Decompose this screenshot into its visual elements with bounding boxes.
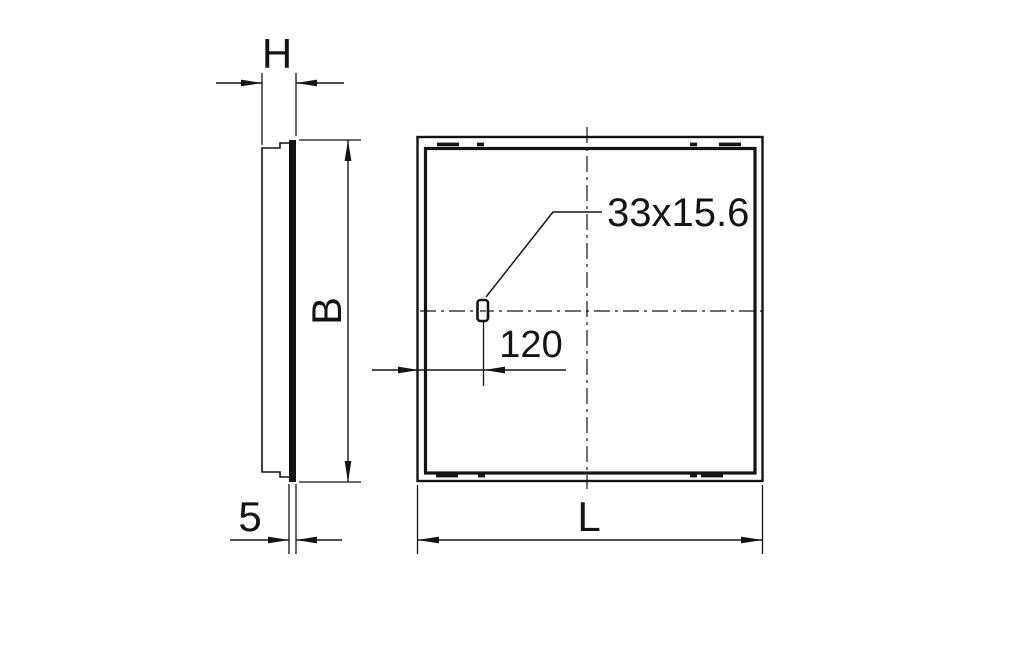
arrowhead: [241, 80, 262, 87]
arrowhead: [484, 367, 505, 374]
dimension-depth-H: H: [216, 30, 344, 145]
arrowhead: [418, 537, 440, 544]
front-view-outer-frame: [418, 137, 763, 481]
clip-mark-slot: [437, 143, 459, 147]
side-view-front-panel: [289, 140, 296, 482]
dimension-offset-120: 120: [372, 322, 566, 386]
clip-mark-square: [690, 143, 697, 147]
clip-mark-square: [478, 474, 485, 477]
leader-line: [486, 212, 602, 297]
dimension-label-offset: 120: [499, 324, 562, 366]
dimension-thickness-5: 5: [230, 484, 342, 554]
dimension-label-height: B: [303, 297, 350, 325]
clip-mark-slot: [701, 474, 723, 477]
cutout-size-label: 33x15.6: [607, 191, 749, 235]
panel-engineering-drawing: H B 5: [0, 0, 1024, 645]
clip-mark-square: [690, 474, 697, 477]
clip-mark-slot: [436, 474, 458, 477]
arrowhead: [296, 80, 317, 87]
cutout-callout: 33x15.6: [486, 191, 749, 297]
dimension-width-L: L: [418, 485, 763, 554]
side-view: [262, 140, 296, 482]
arrowhead: [345, 461, 352, 482]
dimension-height-B: B: [299, 140, 361, 482]
clip-mark-square: [477, 143, 484, 147]
arrowhead: [345, 140, 352, 161]
arrowhead: [398, 367, 419, 374]
arrowhead: [296, 537, 317, 544]
arrowhead: [268, 537, 289, 544]
front-view: [418, 127, 763, 489]
clip-mark-slot: [719, 143, 741, 147]
arrowhead: [741, 537, 763, 544]
dimension-label-depth: H: [262, 30, 292, 77]
dimension-label-thickness: 5: [238, 493, 261, 540]
dimension-label-width: L: [577, 493, 600, 540]
technical-drawing-page: H B 5: [0, 0, 1024, 645]
side-view-body-outline: [262, 143, 289, 477]
